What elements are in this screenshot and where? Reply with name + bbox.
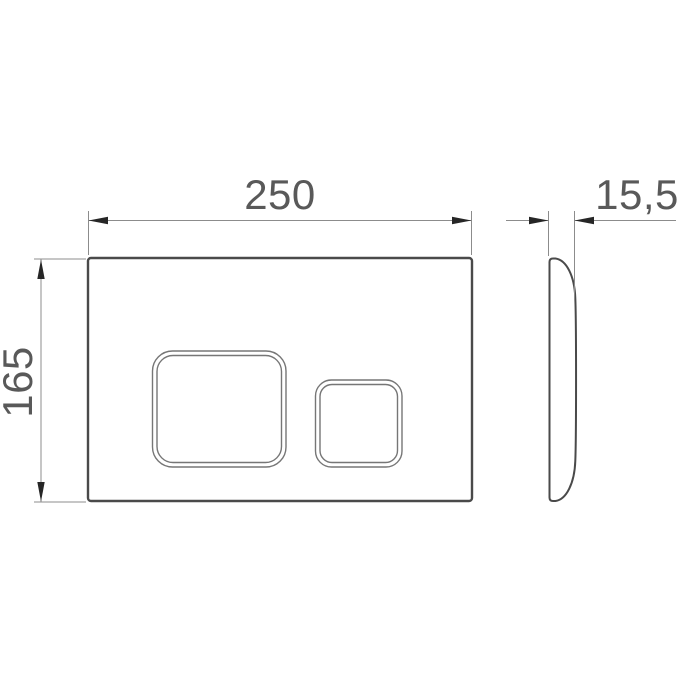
drawing-canvas: 250 15,5 165 — [0, 0, 680, 680]
depth-arrow-left — [529, 217, 549, 224]
width-arrow-right — [452, 217, 472, 224]
width-dimension-label: 250 — [244, 171, 316, 218]
front-view — [88, 258, 472, 501]
flush-plate-panel — [88, 258, 472, 501]
depth-dimension-label: 15,5 — [595, 171, 679, 218]
depth-arrow-right — [575, 217, 595, 224]
height-arrow-top — [37, 260, 44, 280]
side-view — [550, 259, 577, 502]
flush-plate-technical-drawing: 250 15,5 165 — [0, 0, 680, 680]
height-arrow-bottom — [37, 482, 44, 502]
width-arrow-left — [89, 217, 109, 224]
side-profile — [550, 259, 577, 502]
height-dimension-label: 165 — [0, 346, 41, 418]
